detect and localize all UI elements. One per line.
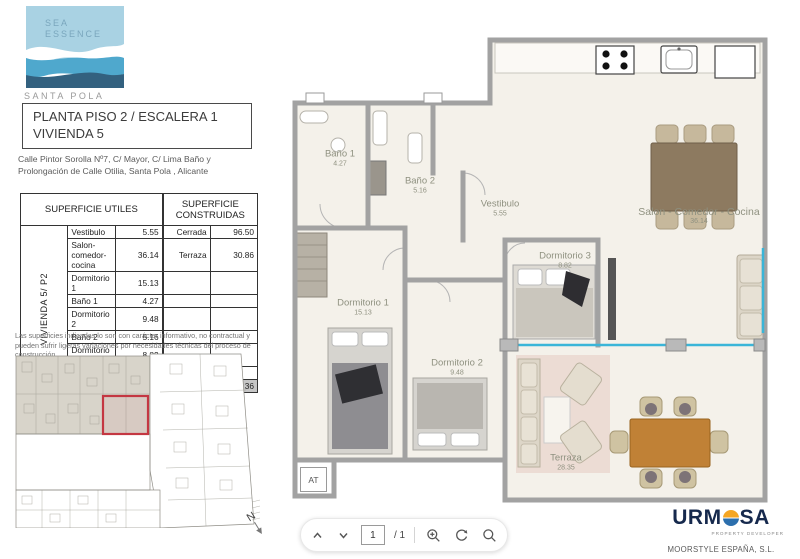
bed-dormitorio-2 <box>413 378 487 450</box>
viewer-toolbar: / 1 <box>300 518 508 552</box>
apartment-floor-plan: Baño 14.27 Baño 25.16 Vestibulo5.55 Salo… <box>278 33 778 513</box>
site-key-plan <box>8 352 264 528</box>
construida-value-cell <box>210 272 257 295</box>
logo-city-label: SANTA POLA <box>24 91 126 101</box>
tv-unit <box>608 258 616 340</box>
construida-value-cell: 96.50 <box>210 226 257 239</box>
sofa <box>737 255 765 339</box>
table-row: VIVIENDA 5/ P2 Vestibulo 5.55 Cerrada 96… <box>21 226 258 239</box>
sun-sea-circle-icon <box>723 510 739 526</box>
sea-essence-wave-icon: SEA ESSENCE <box>24 6 126 88</box>
bed-dormitorio-1 <box>328 328 392 454</box>
construida-name-cell <box>163 308 210 331</box>
construida-value-cell: 30.86 <box>210 239 257 272</box>
plan-title-box: PLANTA PISO 2 / ESCALERA 1 VIVIENDA 5 <box>22 103 252 149</box>
shaft <box>306 93 324 103</box>
header-superficie-utiles: SUPERFICIE UTILES <box>21 194 163 226</box>
shaft <box>424 93 442 103</box>
room-name-cell: Dormitorio 1 <box>68 272 115 295</box>
address-line2: Prolongación de Calle Otilia, Santa Pola… <box>18 165 278 177</box>
room-name-cell: Vestibulo <box>68 226 115 239</box>
company-name: MOORSTYLE ESPAÑA, S.L. <box>650 545 792 554</box>
developer-branding: URMSA PROPERTY DEVELOPER MOORSTYLE ESPAÑ… <box>650 506 792 554</box>
urmosa-logo: URMSA <box>650 506 792 530</box>
magnifier-plus-icon <box>426 528 441 543</box>
page-number-input[interactable] <box>361 525 385 545</box>
logo-text-sea: SEA <box>45 18 69 28</box>
page-count-label: / 1 <box>394 530 405 541</box>
room-name-cell: Salon-comedor-cocina <box>68 239 115 272</box>
construida-name-cell <box>163 272 210 295</box>
plan-title-line2: VIVIENDA 5 <box>33 126 241 143</box>
bed-dormitorio-3 <box>513 265 595 339</box>
construida-name-cell <box>163 295 210 308</box>
search-button[interactable] <box>480 526 499 545</box>
room-name-cell: Baño 1 <box>68 295 115 308</box>
chevron-down-icon <box>337 529 350 542</box>
brand-text-left: URM <box>672 506 721 530</box>
toolbar-divider <box>414 527 415 543</box>
at-tag: AT <box>300 467 327 492</box>
logo-text-essence: ESSENCE <box>45 29 102 39</box>
rotate-ccw-icon <box>454 528 469 543</box>
room-name-cell: Dormitorio 2 <box>68 308 115 331</box>
dining-table <box>651 125 737 229</box>
address-line1: Calle Pintor Sorolla Nº7, C/ Mayor, C/ L… <box>18 153 278 165</box>
room-area-cell: 5.55 <box>115 226 162 239</box>
highlighted-unit-marker <box>103 396 148 434</box>
terrace-lounge <box>516 355 610 473</box>
room-area-cell: 4.27 <box>115 295 162 308</box>
construida-name-cell: Cerrada <box>163 226 210 239</box>
next-page-button[interactable] <box>335 527 352 544</box>
kitchen-counter <box>495 43 760 78</box>
fridge-icon <box>715 46 755 78</box>
room-area-cell: 36.14 <box>115 239 162 272</box>
plan-title-line1: PLANTA PISO 2 / ESCALERA 1 <box>33 109 241 126</box>
zoom-in-button[interactable] <box>424 526 443 545</box>
stove-icon <box>596 46 634 74</box>
project-address: Calle Pintor Sorolla Nº7, C/ Mayor, C/ L… <box>18 153 278 178</box>
header-superficie-construidas: SUPERFICIE CONSTRUIDAS <box>163 194 258 226</box>
chevron-up-icon <box>311 529 324 542</box>
brand-text-right: SA <box>740 506 770 530</box>
wardrobe <box>297 233 327 297</box>
room-area-cell: 15.13 <box>115 272 162 295</box>
rotate-button[interactable] <box>452 526 471 545</box>
construida-value-cell <box>210 295 257 308</box>
floorplan-document-page: SEA ESSENCE SANTA POLA PLANTA PISO 2 / E… <box>0 0 800 559</box>
site-building-outline <box>16 354 254 528</box>
construida-value-cell <box>210 308 257 331</box>
room-area-cell: 9.48 <box>115 308 162 331</box>
sea-essence-logo: SEA ESSENCE SANTA POLA <box>24 6 126 101</box>
construida-name-cell: Terraza <box>163 239 210 272</box>
brand-tagline: PROPERTY DEVELOPER <box>650 531 784 536</box>
previous-page-button[interactable] <box>309 527 326 544</box>
magnifier-icon <box>482 528 497 543</box>
